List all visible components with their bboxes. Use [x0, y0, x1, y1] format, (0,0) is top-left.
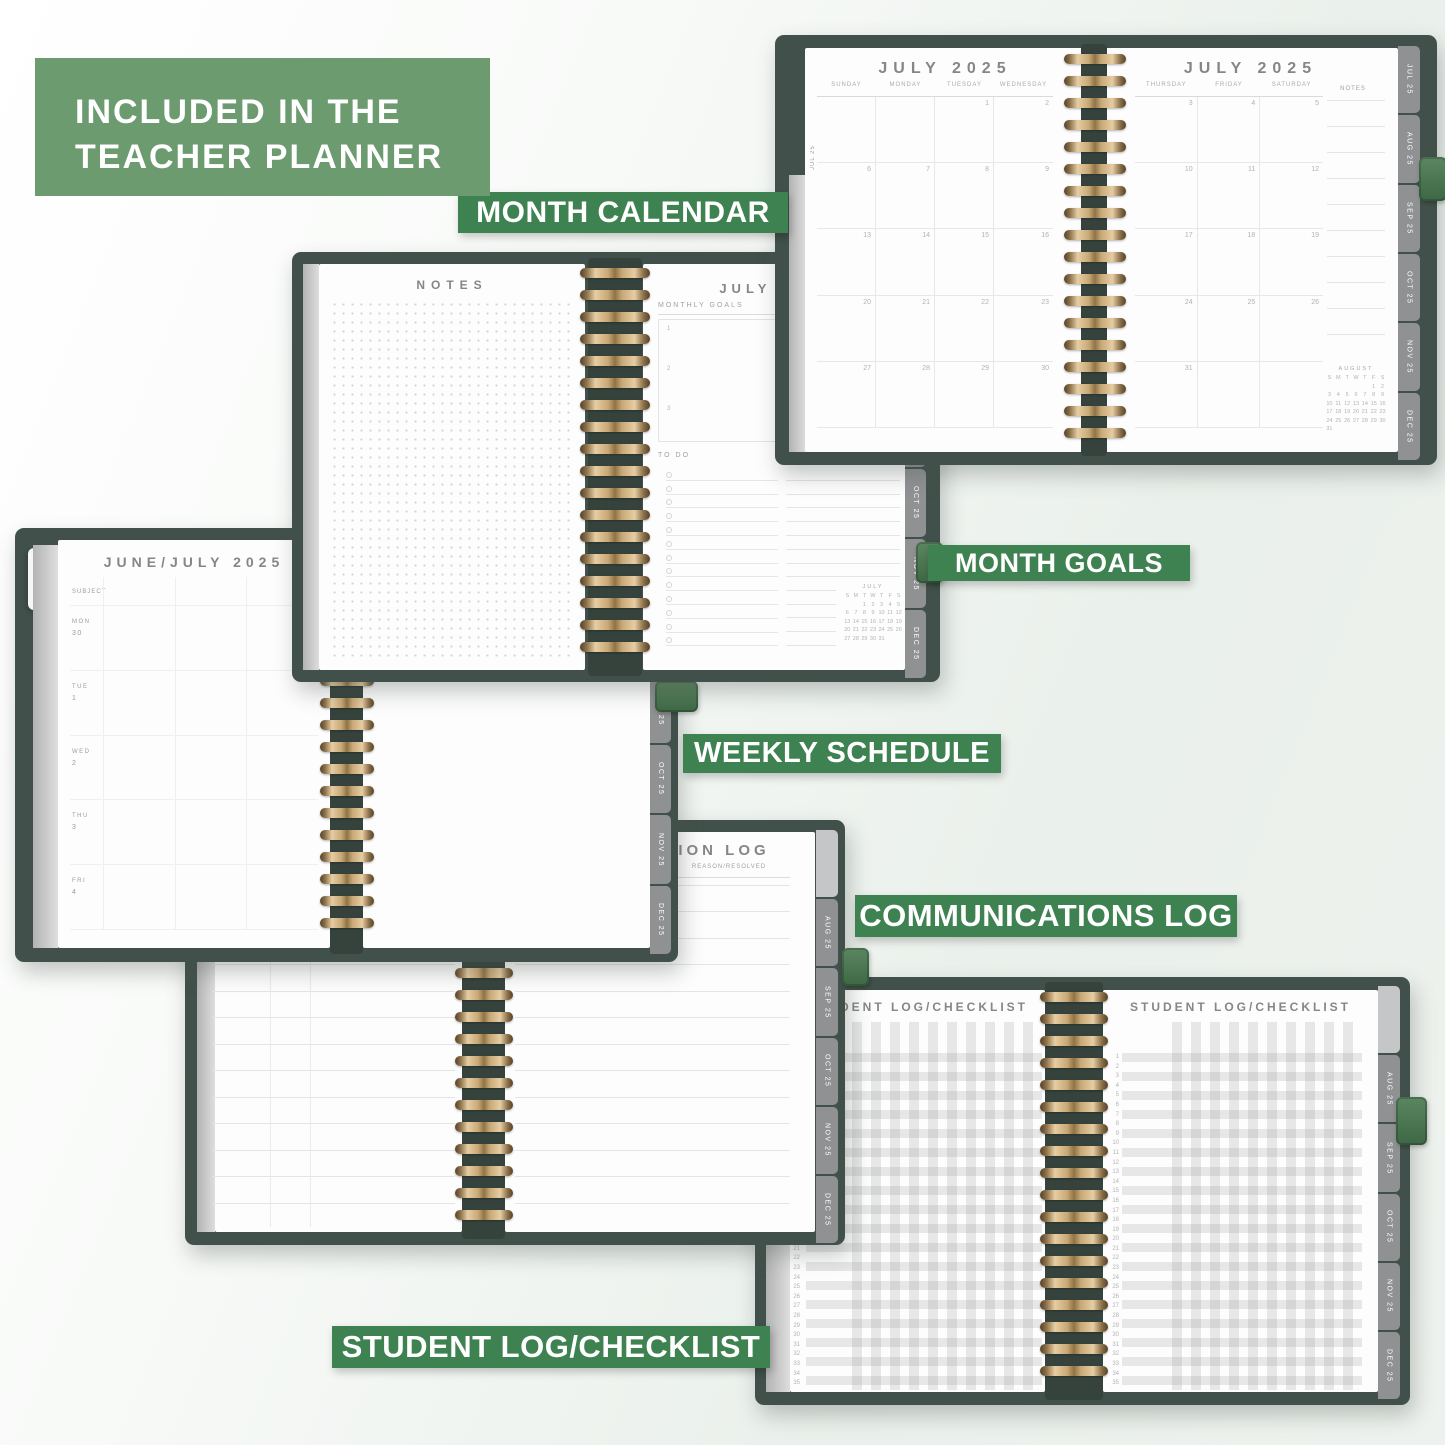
goal-number: 3 [667, 406, 670, 412]
mini-day: M [1334, 374, 1343, 383]
mini-date: 13 [1352, 400, 1361, 409]
month-tab: DEC 25 [816, 1176, 838, 1243]
todo-list [654, 467, 778, 646]
row-number: 23 [786, 1264, 800, 1274]
ruled-line [515, 992, 790, 1019]
month-tab: OCT 25 [650, 745, 671, 813]
mini-day: S [843, 592, 852, 601]
row-number: 23 [1107, 1264, 1119, 1274]
calendar-cell: 17 [1135, 229, 1198, 295]
spiral-coil [455, 1012, 513, 1022]
spiral-coil [1040, 1322, 1108, 1332]
mini-date: 3 [1325, 391, 1334, 400]
mini-day: W [869, 592, 878, 601]
student-log-row-numbers: 1234567891011121314151617181920212223242… [1107, 1053, 1119, 1389]
mini-date: 29 [1369, 417, 1378, 426]
calendar-cell [1260, 362, 1323, 428]
mini-date: 13 [843, 618, 852, 627]
spiral-coil [580, 488, 650, 498]
row-number: 32 [786, 1350, 800, 1360]
goal-number: 2 [667, 366, 670, 372]
spiral-coil [1064, 164, 1126, 174]
calendar-cell: 23 [994, 296, 1053, 362]
page-edge-month-label: JUL 25 [810, 108, 816, 170]
spiral-coil [1040, 1212, 1108, 1222]
row-number: 20 [1107, 1235, 1119, 1245]
row-number: 34 [1107, 1370, 1119, 1380]
ruled-line [786, 467, 900, 481]
spiral-coil [1064, 120, 1126, 130]
row-number: 13 [1107, 1168, 1119, 1178]
month-grid-right: THURSDAYFRIDAYSATURDAY345101112171819242… [1135, 82, 1323, 428]
spiral-coil [455, 1188, 513, 1198]
calendar-cell: 15 [935, 229, 994, 295]
goal-number: 1 [667, 326, 670, 332]
mini-date: 19 [1343, 408, 1352, 417]
calendar-cell: 2 [994, 97, 1053, 163]
mini-date: 3 [877, 601, 886, 610]
spiral-coil [1040, 1256, 1108, 1266]
mini-day: S [894, 592, 903, 601]
spiral-coil [1064, 340, 1126, 350]
weekly-schedule-page-edge [33, 545, 58, 948]
row-number: 14 [1107, 1178, 1119, 1188]
row-number: 26 [786, 1293, 800, 1303]
mini-date: 29 [860, 635, 869, 644]
row-number: 3 [1107, 1072, 1119, 1082]
row-number: 35 [1107, 1379, 1119, 1389]
ruled-line [786, 577, 836, 591]
calendar-cell [876, 97, 935, 163]
calendar-cell: 4 [1198, 97, 1261, 163]
schedule-cell [103, 799, 175, 864]
mini-date [894, 635, 903, 644]
spiral-coil [580, 620, 650, 630]
mini-date [1343, 425, 1352, 434]
mini-date: 19 [894, 618, 903, 627]
calendar-cell [817, 97, 876, 163]
calendar-cell: 30 [994, 362, 1053, 428]
row-number: 8 [1107, 1120, 1119, 1130]
schedule-cell [175, 864, 247, 929]
mini-day: F [1369, 374, 1378, 383]
mini-date: 17 [1325, 408, 1334, 417]
todo-row [666, 508, 778, 522]
day-header: TUESDAY [935, 82, 994, 97]
mini-date: 9 [869, 609, 878, 618]
row-number: 29 [1107, 1322, 1119, 1332]
spiral-coil [1064, 54, 1126, 64]
day-header: MONDAY [876, 82, 935, 97]
mini-date: 6 [1352, 391, 1361, 400]
calendar-cell: 26 [1260, 296, 1323, 362]
calendar-cell: 27 [817, 362, 876, 428]
mini-date: 26 [1343, 417, 1352, 426]
mini-day: M [852, 592, 861, 601]
spiral-coil [320, 808, 374, 818]
month-goals-banner: MONTH GOALS [928, 545, 1190, 581]
ruled-line [1327, 127, 1385, 153]
mini-date: 24 [1325, 417, 1334, 426]
row-number: 11 [1107, 1149, 1119, 1159]
row-number: 31 [786, 1341, 800, 1351]
ruled-line [786, 564, 900, 578]
month-tab: OCT 25 [1378, 1194, 1400, 1261]
calendar-cell: 8 [935, 163, 994, 229]
row-number: 25 [786, 1283, 800, 1293]
mini-date: 10 [877, 609, 886, 618]
month-tab: DEC 25 [1398, 393, 1420, 460]
calendar-cell: 21 [876, 296, 935, 362]
month-tab: AUG 25 [1398, 115, 1420, 182]
spiral-coil [1064, 98, 1126, 108]
ruled-line [212, 1098, 455, 1125]
row-number: 33 [1107, 1360, 1119, 1370]
mini-date: 20 [1352, 408, 1361, 417]
spiral-coil [320, 764, 374, 774]
mini-date: 25 [886, 626, 895, 635]
row-number: 29 [786, 1322, 800, 1332]
spiral-coil [455, 1100, 513, 1110]
row-number: 19 [1107, 1226, 1119, 1236]
calendar-cell: 9 [994, 163, 1053, 229]
pen-loop [655, 681, 698, 712]
spiral-coil [1040, 1366, 1108, 1376]
mini-date: 30 [1378, 417, 1387, 426]
ruled-line [515, 1045, 790, 1072]
spiral-coil [580, 466, 650, 476]
spiral-coil [1040, 1234, 1108, 1244]
spiral-coil [1064, 186, 1126, 196]
spiral-coil [320, 874, 374, 884]
month-tab: DEC 25 [650, 886, 671, 954]
spiral-coil [1040, 1036, 1108, 1046]
calendar-cell: 3 [1135, 97, 1198, 163]
day-header: SUNDAY [817, 82, 876, 97]
mini-date: 28 [852, 635, 861, 644]
row-number: 18 [1107, 1216, 1119, 1226]
calendar-cell: 14 [876, 229, 935, 295]
monthly-goals-label: MONTHLY GOALS [658, 302, 744, 309]
todo-row [666, 467, 778, 481]
mini-day: T [1343, 374, 1352, 383]
mini-date: 16 [1378, 400, 1387, 409]
mini-date: 16 [869, 618, 878, 627]
schedule-cell [246, 864, 318, 929]
spiral-coil [455, 968, 513, 978]
spiral-coil [580, 334, 650, 344]
schedule-cell [175, 735, 247, 800]
schedule-cell [175, 605, 247, 670]
spiral-coil [1064, 318, 1126, 328]
month-calendar-left-title: JULY 2025 [805, 60, 1085, 78]
row-number: 24 [786, 1274, 800, 1284]
spiral-coil [1064, 208, 1126, 218]
schedule-cell [246, 735, 318, 800]
calendar-cell: 6 [817, 163, 876, 229]
month-tab: SEP 25 [816, 968, 838, 1035]
spiral-coils [1040, 988, 1108, 1392]
mini-date: 2 [1378, 383, 1387, 392]
calendar-cell: 1 [935, 97, 994, 163]
mini-date: 4 [1334, 391, 1343, 400]
mini-date: 28 [1360, 417, 1369, 426]
todo-row [666, 605, 778, 619]
mini-day: W [1352, 374, 1361, 383]
schedule-cell [175, 670, 247, 735]
ruled-line [1327, 205, 1385, 231]
mini-date: 8 [860, 609, 869, 618]
ruled-line [786, 481, 900, 495]
mini-date [1369, 425, 1378, 434]
month-calendar-banner: MONTH CALENDAR [458, 192, 788, 233]
row-number: 27 [1107, 1302, 1119, 1312]
spiral-coil [1040, 1278, 1108, 1288]
ruled-line [212, 1071, 455, 1098]
header-line-2: TEACHER PLANNER [75, 135, 490, 180]
mini-date: 1 [1369, 383, 1378, 392]
mini-day: S [1325, 374, 1334, 383]
calendar-cell: 7 [876, 163, 935, 229]
ruled-line [515, 1018, 790, 1045]
mini-date: 5 [1343, 391, 1352, 400]
spiral-coil [1040, 1168, 1108, 1178]
spiral-coil [1040, 1080, 1108, 1090]
calendar-cell: 13 [817, 229, 876, 295]
gingham-rows [1122, 1053, 1362, 1389]
spiral-coil [455, 1056, 513, 1066]
spiral-coil [1064, 384, 1126, 394]
day-row-label: THU3 [70, 799, 103, 864]
month-tab: NOV 25 [1378, 1263, 1400, 1330]
mini-date [1360, 383, 1369, 392]
mini-calendar-title: JULY [843, 584, 903, 590]
ruled-line [515, 1177, 790, 1204]
mini-date: 9 [1378, 391, 1387, 400]
spiral-coil [1064, 406, 1126, 416]
mini-date: 15 [1369, 400, 1378, 409]
mini-date: 18 [1334, 408, 1343, 417]
todo-row [666, 564, 778, 578]
mini-date: 12 [894, 609, 903, 618]
todo-lines [786, 577, 836, 646]
day-header: WEDNESDAY [994, 82, 1053, 97]
subject-header: SUBJECT [70, 577, 103, 605]
mini-calendar-grid: SMTWTFS123456789101112131415161718192021… [1325, 374, 1387, 434]
mini-date: 10 [1325, 400, 1334, 409]
month-tab: OCT 25 [816, 1038, 838, 1105]
mini-date: 6 [843, 609, 852, 618]
ruled-line [786, 536, 900, 550]
ruled-line [212, 965, 455, 992]
spiral-coil [1064, 274, 1126, 284]
day-header: SATURDAY [1260, 82, 1323, 97]
mini-date: 31 [877, 635, 886, 644]
day-row-label: WED2 [70, 735, 103, 800]
row-number: 22 [786, 1254, 800, 1264]
spiral-coil [580, 268, 650, 278]
row-number: 6 [1107, 1101, 1119, 1111]
todo-row [666, 633, 778, 647]
header-box: INCLUDED IN THE TEACHER PLANNER [35, 58, 490, 196]
communications-log-banner: COMMUNICATIONS LOG [855, 895, 1237, 937]
mini-date: 22 [860, 626, 869, 635]
ruled-line [786, 508, 900, 522]
calendar-cell: 22 [935, 296, 994, 362]
ruled-line [1327, 257, 1385, 283]
todo-row [666, 550, 778, 564]
month-tab-strip: AUG 25SEP 25OCT 25NOV 25DEC 25 [1378, 986, 1400, 1399]
mini-date: 7 [1360, 391, 1369, 400]
row-number: 33 [786, 1360, 800, 1370]
mini-day: F [886, 592, 895, 601]
spiral-coil [455, 1078, 513, 1088]
student-log-banner: STUDENT LOG/CHECKLIST [332, 1326, 770, 1368]
day-header: THURSDAY [1135, 82, 1198, 97]
mini-day: T [877, 592, 886, 601]
row-number: 2 [1107, 1063, 1119, 1073]
mini-date: 14 [1360, 400, 1369, 409]
ruled-line [786, 605, 836, 619]
mini-date [1325, 383, 1334, 392]
row-number: 16 [1107, 1197, 1119, 1207]
row-number: 4 [1107, 1082, 1119, 1092]
spiral-coil [1064, 230, 1126, 240]
mini-date [1334, 425, 1343, 434]
mini-date [1334, 383, 1343, 392]
mini-date [1343, 383, 1352, 392]
weekly-schedule-banner: WEEKLY SCHEDULE [683, 734, 1001, 773]
schedule-cell [246, 799, 318, 864]
mini-date: 23 [869, 626, 878, 635]
mini-date [886, 635, 895, 644]
row-number: 15 [1107, 1187, 1119, 1197]
mini-date: 30 [869, 635, 878, 644]
month-tab [816, 830, 838, 897]
month-tab-strip: JUL 25AUG 25SEP 25OCT 25NOV 25DEC 25 [1398, 46, 1420, 460]
row-number: 17 [1107, 1207, 1119, 1217]
month-tab: DEC 25 [1378, 1332, 1400, 1399]
month-tab: NOV 25 [650, 815, 671, 883]
ruled-line [786, 632, 836, 646]
spiral-coil [1040, 1300, 1108, 1310]
spiral-coil [580, 378, 650, 388]
mini-date: 26 [894, 626, 903, 635]
row-number: 9 [1107, 1130, 1119, 1140]
spiral-coil [320, 852, 374, 862]
spiral-coil [1064, 252, 1126, 262]
day-row-label: TUE1 [70, 670, 103, 735]
mini-date: 12 [1343, 400, 1352, 409]
mini-date: 27 [1352, 417, 1361, 426]
mini-date: 8 [1369, 391, 1378, 400]
spiral-coil [1040, 1014, 1108, 1024]
row-number: 10 [1107, 1139, 1119, 1149]
row-number: 21 [1107, 1245, 1119, 1255]
notes-column-lines [1327, 75, 1385, 335]
todo-row [666, 536, 778, 550]
schedule-cell [103, 864, 175, 929]
ruled-line [212, 1045, 455, 1072]
month-tab: NOV 25 [816, 1107, 838, 1174]
ruled-line [212, 992, 455, 1019]
spiral-coil [1064, 76, 1126, 86]
spiral-coil [455, 990, 513, 1000]
calendar-cell: 11 [1198, 163, 1261, 229]
month-tab: SEP 25 [1398, 185, 1420, 252]
spiral-coil [320, 830, 374, 840]
mini-date: 14 [852, 618, 861, 627]
todo-row [666, 591, 778, 605]
ruled-line [786, 591, 836, 605]
ruled-line [1327, 283, 1385, 309]
row-number: 21 [786, 1245, 800, 1255]
calendar-cell: 10 [1135, 163, 1198, 229]
mini-date [1352, 425, 1361, 434]
row-number: 1 [1107, 1053, 1119, 1063]
mini-calendar-title: AUGUST [1325, 366, 1387, 372]
spiral-coil [320, 698, 374, 708]
mini-date [1360, 425, 1369, 434]
spiral-coil [455, 1122, 513, 1132]
spiral-coil [580, 576, 650, 586]
spiral-coil [580, 598, 650, 608]
pen-loop [842, 948, 869, 986]
todo-row [666, 481, 778, 495]
student-log-right-title: STUDENT LOG/CHECKLIST [1103, 1000, 1378, 1014]
spiral-coil [1040, 992, 1108, 1002]
spiral-coil [1040, 1124, 1108, 1134]
ruled-line [786, 522, 900, 536]
month-calendar-page-edge [789, 175, 806, 452]
month-tab: NOV 25 [1398, 323, 1420, 390]
pen-loop [1419, 157, 1445, 201]
row-number: 25 [1107, 1283, 1119, 1293]
month-tab: OCT 25 [1398, 254, 1420, 321]
ruled-line [212, 1177, 455, 1204]
spiral-coil [1064, 362, 1126, 372]
spiral-coil [580, 312, 650, 322]
spiral-coil [580, 444, 650, 454]
spiral-coil [455, 1166, 513, 1176]
ruled-line [786, 550, 900, 564]
month-grid-left: SUNDAYMONDAYTUESDAYWEDNESDAY126789131415… [817, 82, 1053, 428]
month-tab-strip: AUG 25SEP 25OCT 25NOV 25DEC 25 [816, 830, 838, 1243]
mini-date: 11 [1334, 400, 1343, 409]
header-line-1: INCLUDED IN THE [75, 90, 490, 135]
mini-date [843, 601, 852, 610]
row-number: 30 [786, 1331, 800, 1341]
row-number: 22 [1107, 1254, 1119, 1264]
schedule-cell [175, 799, 247, 864]
row-number: 24 [1107, 1274, 1119, 1284]
ruled-line [1327, 75, 1385, 101]
todo-row [666, 577, 778, 591]
calendar-cell: 19 [1260, 229, 1323, 295]
row-number: 12 [1107, 1159, 1119, 1169]
mini-date: 5 [894, 601, 903, 610]
spiral-coil [320, 786, 374, 796]
calendar-cell [1198, 362, 1261, 428]
spiral-coil [580, 400, 650, 410]
spiral-coils [580, 264, 650, 668]
month-tab [1378, 986, 1400, 1053]
spiral-coil [320, 918, 374, 928]
row-number: 31 [1107, 1341, 1119, 1351]
todo-row [666, 495, 778, 509]
ruled-line [515, 1071, 790, 1098]
calendar-cell: 12 [1260, 163, 1323, 229]
